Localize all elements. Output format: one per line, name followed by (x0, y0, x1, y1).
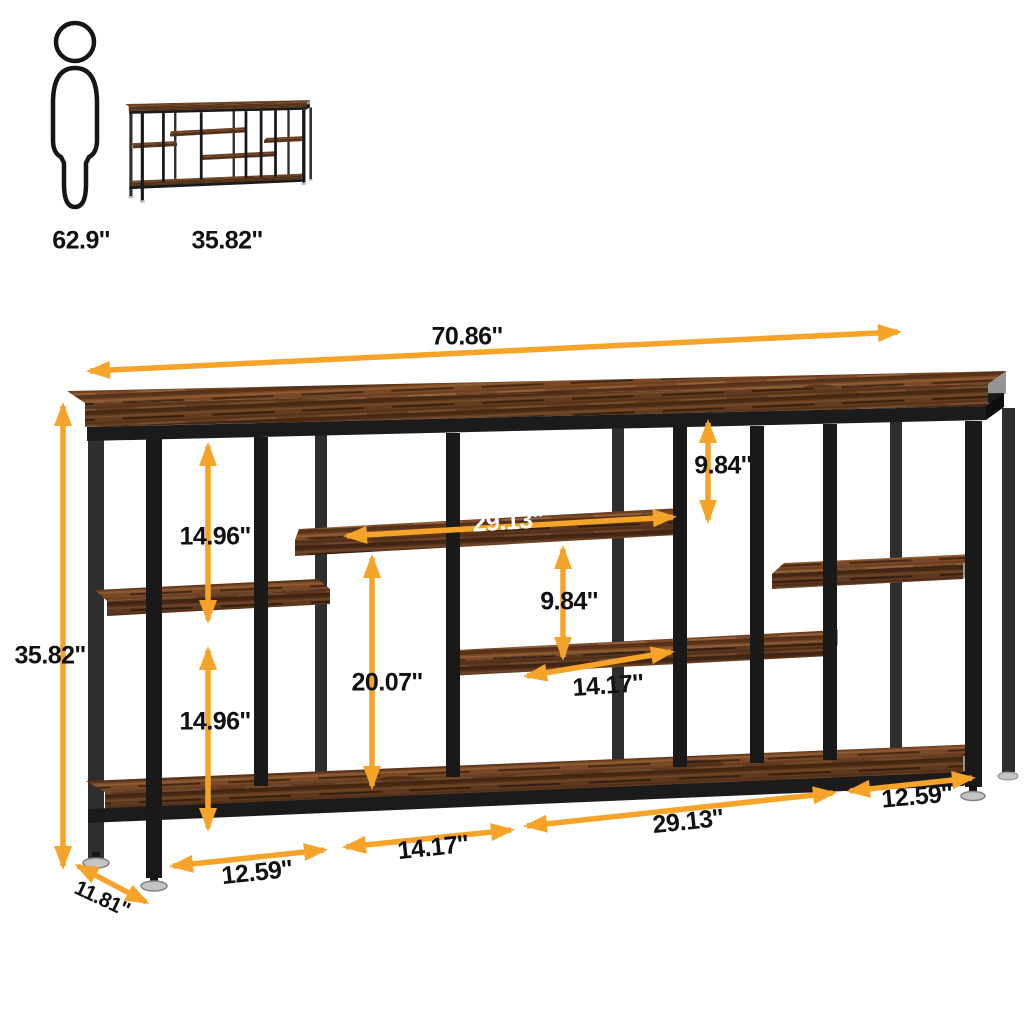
dim-label-bottom-right: 12.59'' (881, 781, 954, 812)
dim-label-right-upper: 9.84'' (694, 454, 752, 479)
dim-label-left-lower: 14.96'' (180, 710, 251, 735)
product-thumbnail (125, 100, 312, 202)
dim-label-center-column: 20.07'' (352, 671, 423, 696)
product-dimension-diagram: 62.9'' 35.82'' 70.86'' 35.82'' 11.81'' 1… (0, 0, 1024, 1024)
dim-label-center-opening: 9.84'' (540, 590, 598, 615)
person-silhouette-icon (53, 23, 97, 207)
product-height-label: 35.82'' (192, 229, 263, 254)
dim-label-middle-shelf: 29.13'' (472, 507, 544, 536)
person-height-label: 62.9'' (52, 229, 110, 254)
dim-label-overall-height: 35.82'' (15, 644, 86, 669)
dim-label-overall-width: 70.86'' (432, 325, 503, 350)
dim-label-left-upper: 14.96'' (180, 525, 251, 550)
dim-label-lower-middle-shelf: 14.17'' (572, 671, 645, 701)
